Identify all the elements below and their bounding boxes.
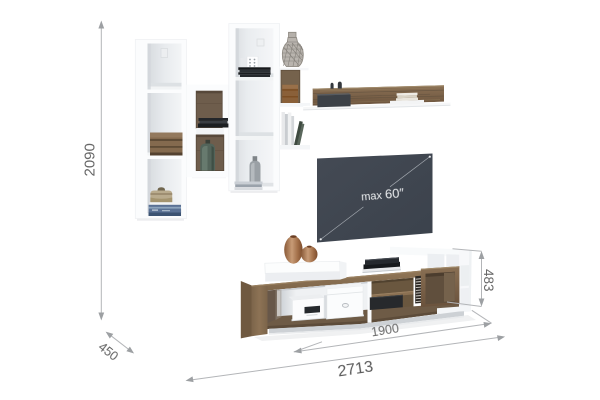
svg-text:2090: 2090 bbox=[82, 143, 99, 176]
svg-text:483: 483 bbox=[481, 269, 496, 292]
